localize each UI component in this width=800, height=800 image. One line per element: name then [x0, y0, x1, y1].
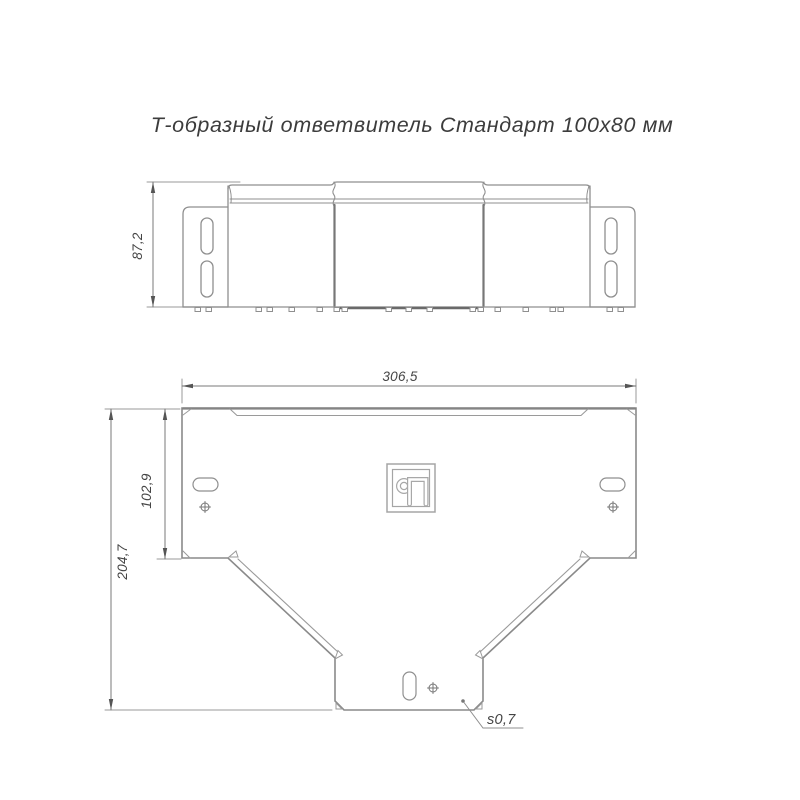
side-height-label: 87,2: [130, 232, 145, 260]
arrowhead-right: [625, 384, 636, 388]
arrowhead-up: [151, 182, 155, 193]
plan-slot-stem: [403, 672, 416, 700]
side-flange-right: [590, 207, 635, 307]
arrowhead-up: [109, 409, 113, 420]
drawing-title: Т-образный ответвитель Стандарт 100х80 м…: [151, 113, 674, 137]
plan-slot-right: [600, 478, 625, 491]
plan-view: 306,5 204,7 102,9: [105, 369, 636, 728]
plan-branch-depth-label: 102,9: [139, 473, 154, 508]
plan-total-depth-label: 204,7: [115, 544, 130, 580]
side-body: [183, 182, 635, 308]
plan-width-dimension: 306,5: [182, 369, 636, 403]
side-view: 87,2: [130, 182, 635, 312]
thickness-label: s0,7: [487, 712, 516, 728]
plan-outline: [182, 408, 636, 710]
plan-branch-depth-dimension: 102,9: [139, 409, 181, 559]
plan-width-label: 306,5: [382, 369, 417, 384]
plan-slot-left: [193, 478, 218, 491]
drawing-page: Т-образный ответвитель Стандарт 100х80 м…: [0, 0, 800, 800]
side-flange-left: [183, 207, 228, 307]
arrowhead-left: [182, 384, 193, 388]
side-bottom-tabs: [195, 308, 624, 312]
arrowhead-up: [163, 409, 167, 420]
technical-drawing: Т-образный ответвитель Стандарт 100х80 м…: [0, 0, 800, 800]
arrowhead-down: [151, 296, 155, 307]
arrowhead-down: [109, 699, 113, 710]
arrowhead-down: [163, 548, 167, 559]
